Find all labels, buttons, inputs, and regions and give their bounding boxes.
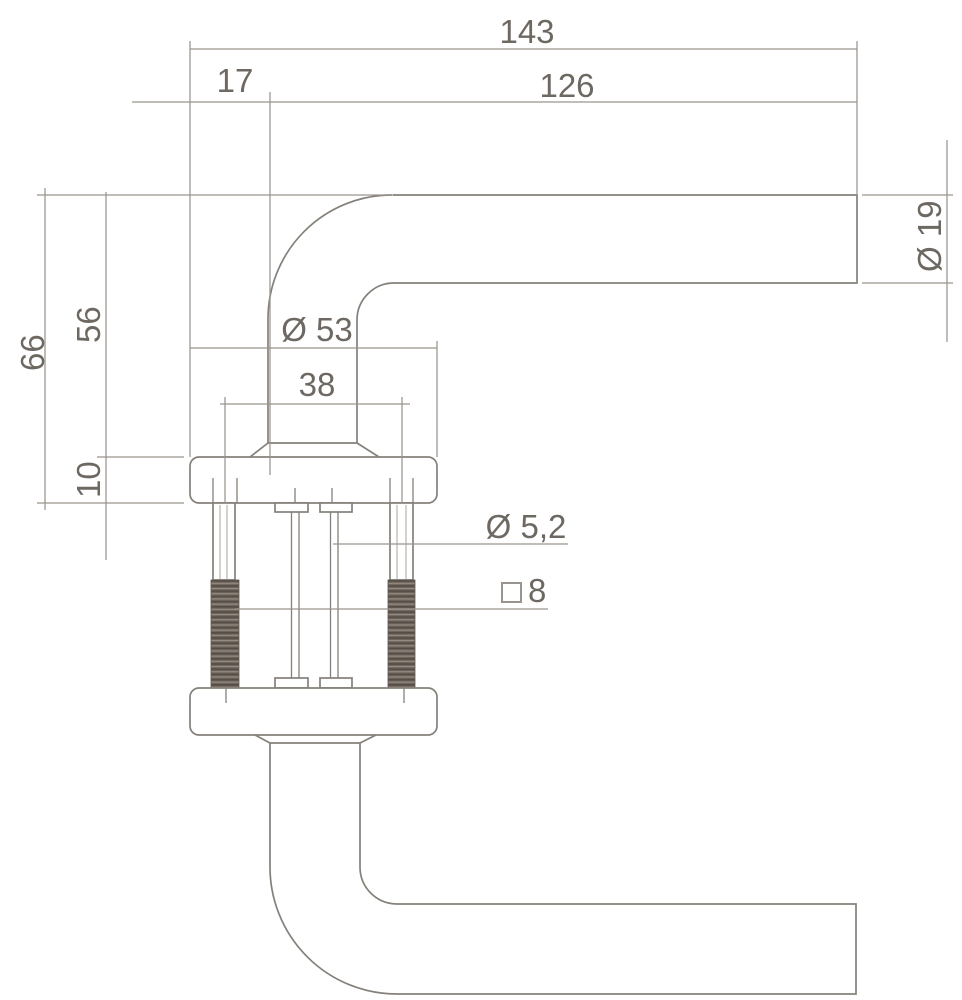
label-total-width: 143	[499, 13, 554, 50]
label-screw-spacing: 38	[299, 366, 336, 403]
rose-top-plate	[190, 457, 437, 503]
lever-handle-bottom	[255, 735, 856, 994]
bottom-bend-inner-edge	[360, 743, 397, 904]
dimensions: 143 17 126 Ø 19 66 56 10 Ø 53 38 Ø 5,2 8	[14, 13, 953, 609]
label-rose-diameter: Ø 53	[281, 311, 353, 348]
bottom-bend-outer-edge	[270, 743, 856, 994]
top-bend-inner-edge	[357, 283, 394, 443]
fixing-screws	[211, 503, 415, 688]
rose-bottom-plate	[190, 688, 437, 735]
label-neck-offset: 17	[217, 62, 254, 99]
screw-left-thread	[211, 580, 239, 688]
spindle-cap-top-right	[320, 503, 352, 512]
screw-right-shank	[390, 503, 413, 580]
label-spindle-square-size: 8	[528, 572, 546, 609]
label-total-height: 66	[14, 334, 51, 371]
technical-drawing-canvas: 143 17 126 Ø 19 66 56 10 Ø 53 38 Ø 5,2 8	[0, 0, 962, 1000]
label-rose-thickness: 10	[70, 461, 107, 498]
drawing-page: 143 17 126 Ø 19 66 56 10 Ø 53 38 Ø 5,2 8	[0, 0, 962, 1000]
rose-bottom	[190, 688, 437, 735]
spindle-bars	[292, 505, 339, 682]
label-grip-length: 126	[539, 67, 594, 104]
label-tube-diameter: Ø 19	[911, 200, 948, 272]
square-symbol	[502, 583, 521, 602]
spindle-cap-bottom-right	[320, 678, 352, 688]
top-neck-flange	[250, 443, 379, 457]
rose-top	[190, 457, 437, 503]
screw-left-shank	[213, 503, 235, 580]
spindle-cap-top-left	[275, 503, 308, 512]
spindle	[275, 503, 352, 688]
top-grip-tube	[393, 195, 857, 283]
screw-right-thread	[388, 580, 415, 688]
label-screw-diameter: Ø 5,2	[486, 508, 567, 545]
spindle-cap-bottom-left	[275, 678, 308, 688]
label-height-to-rose-top: 56	[70, 306, 107, 343]
bottom-neck-flange	[255, 735, 376, 743]
